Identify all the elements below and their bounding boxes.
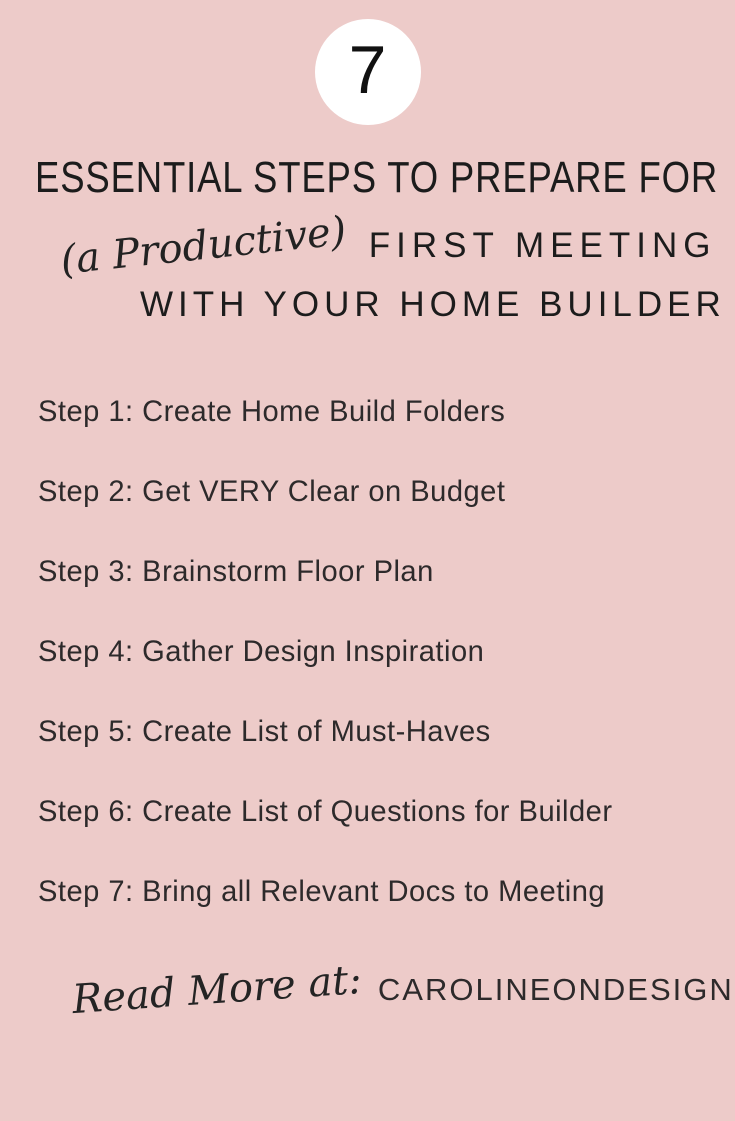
footer-website-text: CAROLINEONDESIGN.COM <box>378 972 735 1008</box>
title-line-1-text: ESSENTIAL STEPS TO PREPARE FOR <box>35 150 718 205</box>
title-line-1: ESSENTIAL STEPS TO PREPARE FOR <box>0 150 735 215</box>
footer-read-more-script: Read More at: <box>71 957 363 1023</box>
title-block: ESSENTIAL STEPS TO PREPARE FOR (a Produc… <box>0 150 735 333</box>
step-item-7: Step 7: Bring all Relevant Docs to Meeti… <box>38 875 714 909</box>
steps-list: Step 1: Create Home Build Folders Step 2… <box>0 395 735 909</box>
number-badge: 7 <box>315 19 421 125</box>
step-item-1: Step 1: Create Home Build Folders <box>38 395 714 429</box>
title-line-2-text: FIRST MEETING <box>369 215 717 277</box>
title-line-2: (a Productive) FIRST MEETING <box>0 215 735 277</box>
step-item-6: Step 6: Create List of Questions for Bui… <box>38 795 714 829</box>
step-item-5: Step 5: Create List of Must-Haves <box>38 715 714 749</box>
step-item-3: Step 3: Brainstorm Floor Plan <box>38 555 714 589</box>
step-item-4: Step 4: Gather Design Inspiration <box>38 635 714 669</box>
footer: Read More at: CAROLINEONDESIGN.COM <box>0 967 735 1013</box>
step-item-2: Step 2: Get VERY Clear on Budget <box>38 475 714 509</box>
badge-number: 7 <box>349 36 387 108</box>
